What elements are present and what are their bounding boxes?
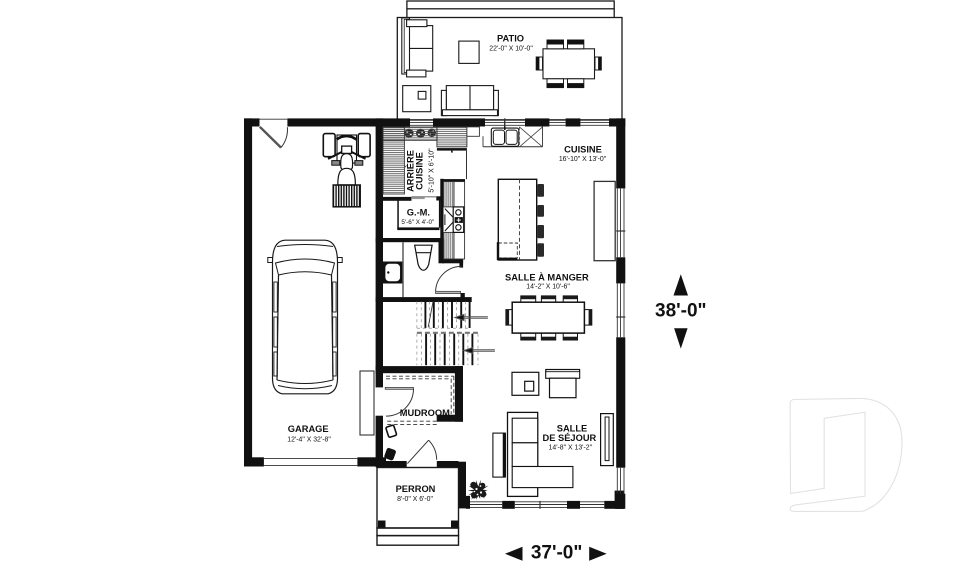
svg-text:16'-10" X 13'-0": 16'-10" X 13'-0" bbox=[559, 156, 607, 163]
svg-text:DE SÉJOUR: DE SÉJOUR bbox=[543, 433, 597, 443]
svg-text:14'-8" X 13'-2": 14'-8" X 13'-2" bbox=[549, 444, 593, 451]
svg-text:38'-0": 38'-0" bbox=[655, 300, 707, 321]
svg-text:MUDROOM: MUDROOM bbox=[400, 408, 450, 418]
svg-text:CUISINE: CUISINE bbox=[414, 152, 424, 190]
svg-text:12'-4" X 32'-8": 12'-4" X 32'-8" bbox=[287, 436, 331, 443]
svg-text:37'-0": 37'-0" bbox=[531, 543, 583, 564]
svg-text:22'-0" X 10'-0": 22'-0" X 10'-0" bbox=[489, 45, 533, 52]
svg-text:G.-M.: G.-M. bbox=[407, 208, 430, 218]
svg-text:CUISINE: CUISINE bbox=[564, 144, 602, 154]
svg-text:14'-2" X 10'-6": 14'-2" X 10'-6" bbox=[526, 284, 570, 291]
svg-text:SALLE À MANGER: SALLE À MANGER bbox=[505, 272, 589, 282]
svg-text:GARAGE: GARAGE bbox=[288, 424, 329, 434]
svg-text:PERRON: PERRON bbox=[396, 484, 436, 494]
svg-text:PATIO: PATIO bbox=[497, 33, 524, 43]
svg-text:8'-0" X 6'-0": 8'-0" X 6'-0" bbox=[397, 496, 433, 503]
svg-text:5'-10" X 6'-10": 5'-10" X 6'-10" bbox=[429, 148, 436, 193]
svg-text:5'-6" X 4'-0": 5'-6" X 4'-0" bbox=[401, 219, 434, 226]
